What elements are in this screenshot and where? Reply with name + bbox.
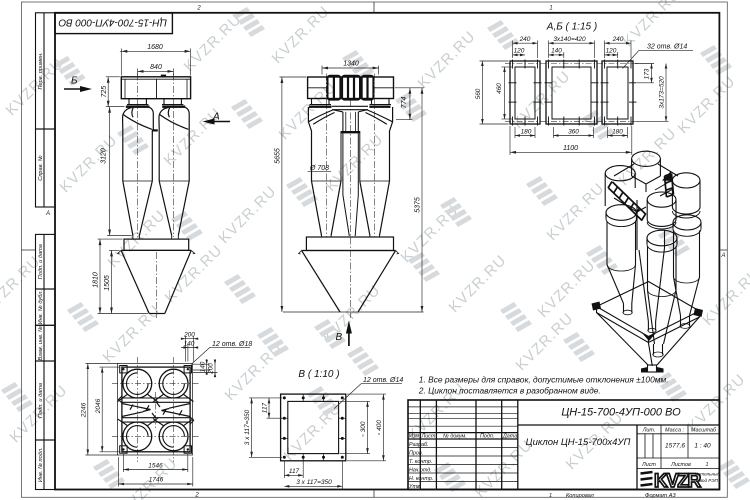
- svg-text:№ докум.: № докум.: [443, 434, 467, 440]
- svg-text:А: А: [45, 211, 50, 217]
- svg-text:1746: 1746: [149, 476, 164, 483]
- svg-text:Перв. примен.: Перв. примен.: [38, 52, 44, 89]
- svg-text:KVZR.RU: KVZR.RU: [216, 183, 281, 248]
- svg-text:560: 560: [475, 88, 482, 99]
- svg-text:Подп. и дата: Подп. и дата: [38, 244, 44, 279]
- svg-text:3х140=420: 3х140=420: [553, 36, 586, 43]
- svg-text:KVZR.RU: KVZR.RU: [415, 28, 480, 93]
- svg-text:Нач.отд.: Нач.отд.: [409, 467, 432, 473]
- svg-text:140: 140: [199, 361, 206, 372]
- svg-text:140: 140: [184, 340, 195, 347]
- svg-text:Утв.: Утв.: [408, 484, 421, 490]
- svg-text:KVZR.RU: KVZR.RU: [510, 68, 575, 133]
- svg-text:774: 774: [401, 97, 408, 109]
- svg-text:Подп.: Подп.: [480, 434, 494, 440]
- svg-text:Инв. № дубл.: Инв. № дубл.: [38, 290, 44, 324]
- svg-text:140: 140: [551, 48, 562, 55]
- svg-text:Б: Б: [71, 76, 78, 87]
- svg-text:завод РЭП: завод РЭП: [694, 478, 719, 483]
- svg-text:Лит.: Лит.: [642, 428, 656, 434]
- svg-text:KVZR.RU: KVZR.RU: [675, 73, 740, 138]
- svg-text:173: 173: [644, 68, 651, 79]
- svg-text:Лист: Лист: [421, 434, 436, 440]
- svg-text:А: А: [720, 253, 725, 259]
- svg-text:460: 460: [496, 83, 503, 94]
- svg-text:Листов: Листов: [670, 462, 691, 468]
- svg-text:ЦН-15-700-4УП-000 ВО: ЦН-15-700-4УП-000 ВО: [561, 407, 681, 419]
- svg-text:360: 360: [568, 129, 579, 136]
- svg-text:1: 1: [549, 493, 552, 499]
- svg-text:117: 117: [262, 402, 269, 413]
- svg-text:Справ. №: Справ. №: [38, 155, 44, 180]
- svg-text:240: 240: [519, 36, 531, 43]
- svg-text:▫ 300: ▫ 300: [360, 421, 367, 436]
- svg-text:Ø 708: Ø 708: [309, 165, 329, 172]
- svg-text:1340: 1340: [343, 61, 359, 68]
- svg-text:1: 1: [706, 462, 709, 468]
- svg-text:KVZR.RU: KVZR.RU: [162, 242, 227, 307]
- svg-text:Дата: Дата: [502, 434, 517, 440]
- svg-text:120: 120: [514, 48, 525, 55]
- svg-text:Циклон ЦН-15-700х4УП: Циклон ЦН-15-700х4УП: [526, 437, 631, 448]
- svg-text:12 отв. Ø14: 12 отв. Ø14: [363, 377, 403, 384]
- svg-text:▫ 400: ▫ 400: [376, 420, 383, 435]
- svg-text:1. Все размеры для справок, до: 1. Все размеры для справок, допустимые о…: [419, 375, 669, 385]
- svg-text:2046: 2046: [95, 398, 102, 414]
- svg-text:200: 200: [208, 363, 215, 375]
- svg-text:KVZR.RU: KVZR.RU: [181, 11, 246, 76]
- svg-text:3 х 117=350: 3 х 117=350: [244, 409, 251, 445]
- svg-text:32 отв. Ø14: 32 отв. Ø14: [647, 44, 687, 51]
- svg-text:2: 2: [196, 6, 201, 12]
- svg-text:Подп. и дата: Подп. и дата: [38, 383, 44, 418]
- svg-text:2. Циклон поставляется в разоб: 2. Циклон поставляется в разобранном вид…: [418, 386, 601, 396]
- svg-text:В ( 1:10 ): В ( 1:10 ): [298, 369, 339, 380]
- svg-text:Формат А3: Формат А3: [645, 493, 676, 499]
- svg-text:1 : 40: 1 : 40: [694, 443, 711, 450]
- svg-text:Копировал: Копировал: [566, 493, 595, 499]
- svg-text:3120: 3120: [100, 148, 107, 164]
- svg-text:117: 117: [289, 468, 300, 475]
- svg-text:ЦН-15-700-4УП-000 ВО: ЦН-15-700-4УП-000 ВО: [58, 17, 167, 28]
- svg-text:120: 120: [606, 48, 617, 55]
- svg-text:2246: 2246: [81, 402, 88, 418]
- svg-text:1810: 1810: [93, 272, 100, 288]
- svg-text:KVZR.RU: KVZR.RU: [323, 131, 388, 196]
- svg-text:KVZR.RU: KVZR.RU: [620, 0, 685, 50]
- svg-text:KVZR.RU: KVZR.RU: [700, 265, 750, 330]
- svg-text:1577,6: 1577,6: [665, 443, 685, 450]
- svg-text:Масштаб: Масштаб: [691, 428, 717, 434]
- svg-text:3х173=520: 3х173=520: [658, 76, 665, 109]
- svg-text:Разраб.: Разраб.: [409, 442, 429, 448]
- svg-text:725: 725: [101, 86, 108, 98]
- svg-text:В: В: [336, 332, 343, 343]
- svg-text:Масса :: Масса :: [665, 428, 684, 434]
- svg-text:180: 180: [612, 129, 623, 136]
- svg-text:1: 1: [549, 6, 552, 12]
- svg-text:KVZR.RU: KVZR.RU: [57, 132, 122, 197]
- svg-text:240: 240: [612, 36, 624, 43]
- svg-text:Котельный: Котельный: [695, 471, 720, 477]
- svg-text:Лист: Лист: [641, 462, 656, 468]
- svg-text:Взам. инв. №: Взам. инв. №: [38, 326, 44, 361]
- svg-text:KVZR.RU: KVZR.RU: [222, 340, 287, 405]
- svg-text:12 отв. Ø18: 12 отв. Ø18: [212, 341, 252, 348]
- svg-text:5375: 5375: [415, 197, 422, 213]
- svg-text:200: 200: [183, 332, 195, 339]
- svg-text:Н. контр.: Н. контр.: [409, 476, 433, 482]
- svg-text:KVZR.RU: KVZR.RU: [446, 252, 511, 317]
- svg-text:А,Б ( 1:15 ): А,Б ( 1:15 ): [546, 22, 597, 33]
- svg-text:KVZR.RU: KVZR.RU: [100, 302, 165, 367]
- svg-text:Т. контр.: Т. контр.: [409, 459, 432, 465]
- svg-text:1100: 1100: [563, 145, 578, 152]
- svg-text:5655: 5655: [275, 148, 282, 164]
- svg-text:3 х 117=350: 3 х 117=350: [296, 479, 332, 486]
- svg-text:2: 2: [194, 493, 199, 499]
- svg-text:1680: 1680: [147, 44, 163, 51]
- svg-text:KVZR.RU: KVZR.RU: [544, 180, 609, 245]
- svg-text:Изм.: Изм.: [409, 434, 421, 440]
- svg-text:180: 180: [521, 129, 532, 136]
- svg-text:1505: 1505: [104, 275, 111, 291]
- svg-text:1546: 1546: [148, 462, 163, 469]
- svg-text:Инв. № подл.: Инв. № подл.: [38, 447, 44, 482]
- svg-text:840: 840: [150, 64, 162, 71]
- svg-text:Пров.: Пров.: [409, 450, 423, 456]
